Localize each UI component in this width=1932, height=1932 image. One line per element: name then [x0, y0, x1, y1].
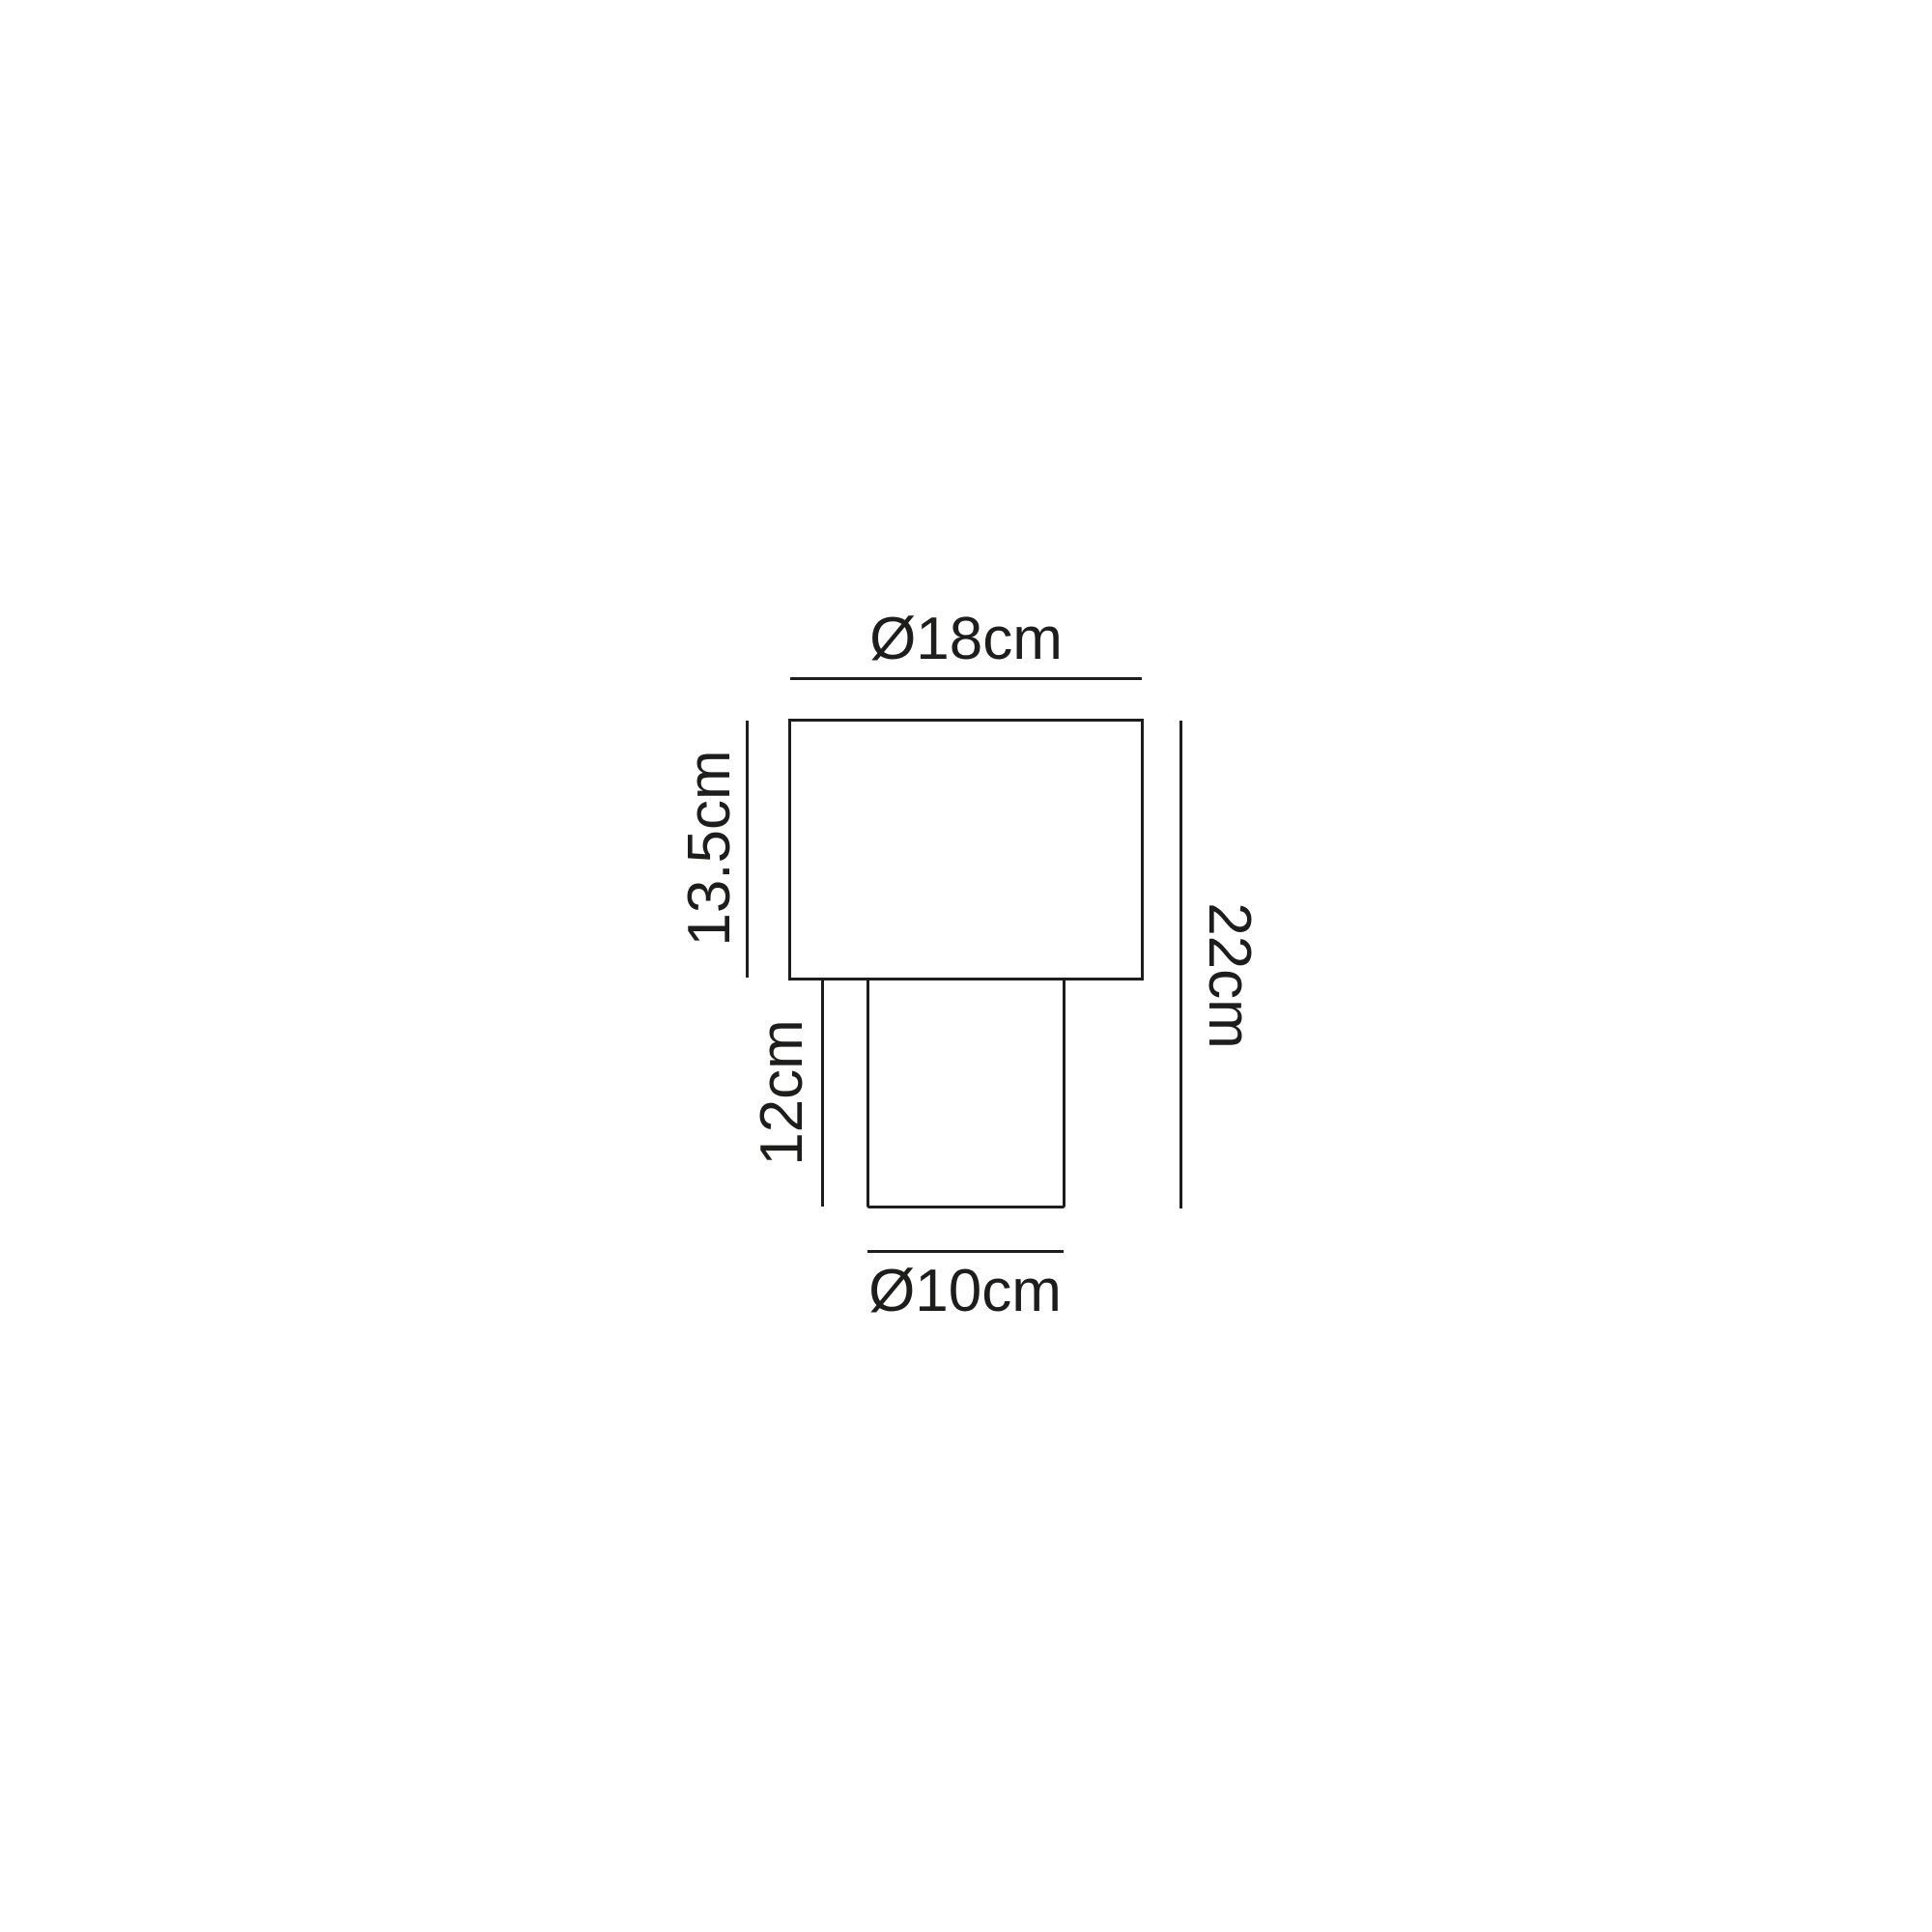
shade-diameter-label: Ø18cm: [869, 610, 1063, 669]
shade-height-dimension-line: [746, 721, 749, 978]
total-height-dimension-line: [1179, 721, 1182, 1208]
base-height-label: 12cm: [753, 1019, 812, 1166]
shade-diameter-dimension-line: [790, 677, 1142, 680]
base-diameter-label: Ø10cm: [868, 1262, 1062, 1321]
lamp-base-outline: [867, 978, 1065, 1208]
base-diameter-dimension-line: [867, 1250, 1064, 1253]
base-height-dimension-line: [821, 977, 824, 1207]
total-height-label: 22cm: [1199, 902, 1259, 1049]
shade-height-label: 13.5cm: [680, 750, 740, 946]
dimension-diagram: Ø18cm 13.5cm 12cm 22cm Ø10cm: [0, 0, 1932, 1932]
lamp-shade-outline: [788, 719, 1144, 980]
